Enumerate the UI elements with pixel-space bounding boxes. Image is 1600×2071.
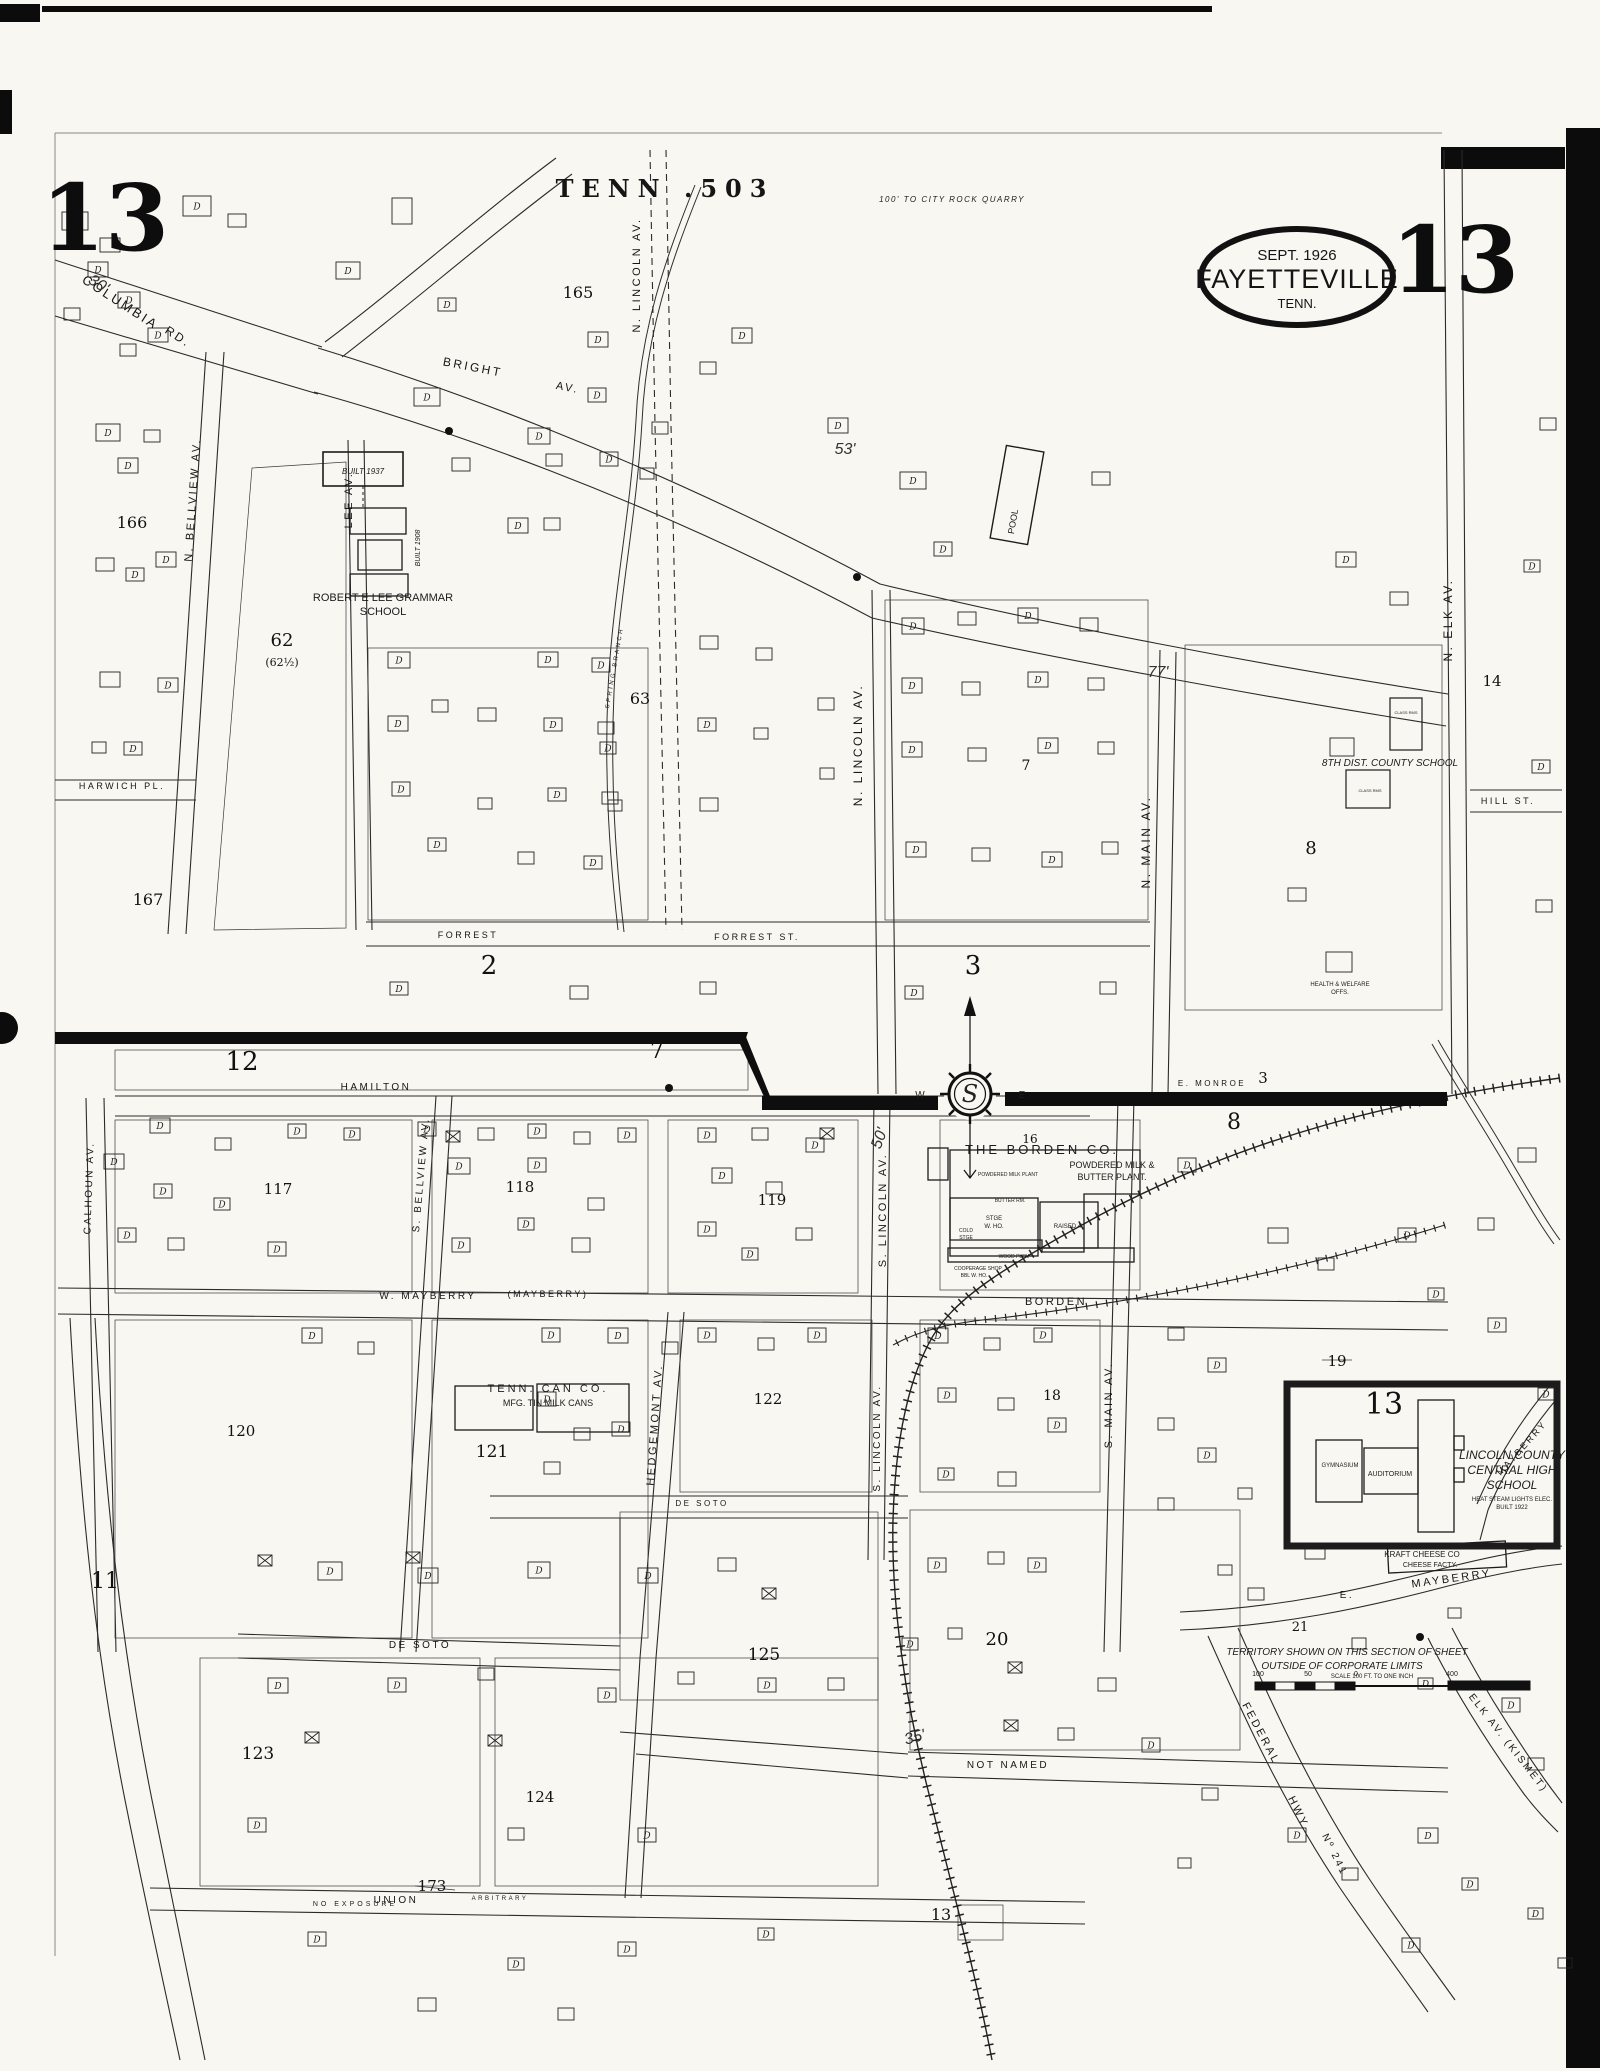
dwelling: D	[758, 1928, 774, 1941]
outbuilding	[758, 1338, 774, 1350]
dwelling: D	[248, 1818, 266, 1832]
dwelling-label: D	[532, 1128, 540, 1138]
landmark-label-stge: STGE	[986, 1216, 1002, 1222]
outbuilding	[984, 1338, 1000, 1350]
stamp-city: FAYETTEVILLE	[1195, 264, 1399, 294]
dwelling: D	[288, 1124, 306, 1138]
landmark-label-auditorium: AUDITORIUM	[1368, 1471, 1412, 1478]
outbuilding	[968, 748, 986, 761]
dwelling-label: D	[153, 332, 161, 342]
outbuilding	[756, 648, 772, 660]
outbuilding	[1330, 738, 1354, 756]
dwelling: D	[428, 838, 446, 851]
dwelling: D	[1418, 1828, 1438, 1843]
dwelling-label: D	[593, 336, 601, 346]
dwelling-label: D	[307, 1332, 315, 1342]
outbuilding	[1288, 888, 1306, 901]
dwelling: D	[214, 1198, 230, 1211]
dwelling-label: D	[252, 1822, 260, 1832]
outbuilding	[754, 728, 768, 739]
dwelling-label: D	[1406, 1942, 1414, 1952]
landmark-label-8th-dist-county-school: 8TH DIST. COUNTY SCHOOL	[1322, 758, 1458, 769]
dwelling: D	[448, 1158, 470, 1174]
dwelling: D	[528, 1124, 546, 1138]
outbuilding	[958, 612, 976, 625]
dwelling-label: D	[393, 720, 401, 730]
outbuilding	[598, 722, 614, 734]
dwelling-label: D	[534, 1567, 542, 1577]
outbuilding	[1238, 1488, 1252, 1499]
outbuilding	[820, 768, 834, 779]
block-number-7: 7	[650, 1039, 664, 1064]
dwelling-label: D	[905, 1641, 913, 1651]
dwelling-label: D	[603, 745, 611, 755]
outbuilding	[478, 798, 492, 809]
dwelling-label: D	[1292, 1832, 1300, 1842]
outbuilding-x	[820, 1128, 834, 1139]
street-label-forrest-st: FORREST ST.	[714, 932, 800, 942]
outbuilding	[1088, 678, 1104, 690]
outbuilding	[1448, 1608, 1461, 1618]
dwelling-label: D	[532, 1162, 540, 1172]
dwelling-label: D	[1202, 1452, 1210, 1462]
compass-north-arrow	[964, 996, 976, 1016]
dwelling-label: D	[1023, 612, 1031, 622]
dwelling-label: D	[511, 1961, 519, 1971]
dwelling: D	[1178, 1158, 1196, 1172]
block-number-63: 63	[630, 689, 650, 708]
dwelling: D	[336, 262, 360, 279]
block-number-166: 166	[117, 513, 148, 532]
block-number-20: 20	[986, 1629, 1009, 1650]
dwelling: D	[1524, 560, 1540, 573]
outbuilding-x	[406, 1552, 420, 1563]
sanborn-map-sheet: DDDDDDDDDDDDDDDDDDDDDDDDDDDDDDDDDDDDDDDD…	[0, 0, 1600, 2071]
dwelling-label: D	[616, 1426, 624, 1436]
dwelling: D	[928, 1558, 946, 1572]
dwelling-label: D	[192, 203, 200, 213]
dwelling: D	[1038, 738, 1058, 753]
dwelling-label: D	[1212, 1362, 1220, 1372]
street-label-w-mayberry: W. MAYBERRY	[379, 1291, 476, 1302]
dwelling-label: D	[938, 546, 946, 556]
dwelling-label: D	[908, 477, 916, 487]
dwelling: D	[608, 1328, 628, 1343]
outbuilding	[358, 1342, 374, 1354]
dwelling: D	[302, 1328, 322, 1343]
dwelling: D	[452, 1238, 470, 1252]
street-label-de-soto: DE SOTO	[675, 1499, 728, 1508]
dwelling-label: D	[109, 1158, 117, 1168]
dwelling: D	[638, 1828, 656, 1842]
dwelling: D	[118, 1228, 136, 1242]
stamp-date: SEPT. 1926	[1257, 247, 1336, 264]
street-label-arbitrary: ARBITRARY	[472, 1896, 529, 1902]
landmark-label-w-ho: W. HO.	[984, 1224, 1004, 1230]
street-curve-block11	[70, 1318, 205, 2060]
outbuilding	[572, 1238, 590, 1252]
landmark-label-health-welfare: HEALTH & WELFARE	[1310, 982, 1369, 988]
dwelling-label: D	[292, 1128, 300, 1138]
dwelling-label: D	[745, 1251, 753, 1261]
dwelling: D	[618, 1128, 636, 1142]
dwelling-label: D	[513, 522, 521, 532]
dwelling-label: D	[737, 332, 745, 342]
landmark-label-offs: OFFS.	[1331, 990, 1349, 996]
stamp-state: TENN.	[1278, 296, 1317, 311]
outbuilding	[1178, 1858, 1191, 1868]
street-not-named	[908, 1752, 1448, 1792]
dwelling-label: D	[933, 1332, 941, 1342]
dwelling-label: D	[394, 985, 402, 995]
dwelling-label: D	[130, 571, 138, 581]
street-label-forrest: FORREST	[438, 930, 499, 940]
dwelling-label: D	[1047, 856, 1055, 866]
landmark-label-lincoln-county: LINCOLN COUNTY	[1459, 1448, 1566, 1462]
dwelling-label: D	[1182, 1162, 1190, 1172]
outbuilding	[652, 422, 668, 434]
street-label-s-lincoln-av: S. LINCOLN AV.	[872, 1384, 883, 1491]
dwelling: D	[1336, 552, 1356, 567]
dwelling-label: D	[272, 1246, 280, 1256]
scale-tick-100: 100	[1252, 1671, 1264, 1678]
landmark-label-stge: STGE	[959, 1235, 973, 1241]
street-label-n-bellview-av: N. BELLVIEW AV.	[183, 437, 204, 562]
street-label-hill-st: HILL ST.	[1481, 796, 1535, 806]
dwelling: D	[806, 1138, 824, 1152]
outbuilding	[215, 1138, 231, 1150]
outbuilding	[602, 792, 618, 804]
outbuilding	[1478, 1218, 1494, 1230]
dwelling: D	[392, 782, 410, 796]
street-label-harwich-pl: HARWICH PL.	[79, 781, 165, 791]
outbuilding	[1058, 1728, 1074, 1740]
outbuilding	[1168, 1328, 1184, 1340]
dwelling: D	[1034, 1328, 1052, 1342]
block-number-125: 125	[748, 1645, 780, 1665]
dwelling-label: D	[454, 1163, 462, 1173]
landmark-label-built-1908: BUILT 1908	[415, 529, 422, 566]
dwelling-label: D	[812, 1332, 820, 1342]
outbuilding	[544, 518, 560, 530]
dwelling: D	[938, 1468, 954, 1481]
dwelling: D	[268, 1678, 288, 1693]
street-label-e-monroe: E. MONROE	[1178, 1079, 1246, 1088]
street-label-n-lincoln-av: N. LINCOLN AV.	[851, 684, 865, 806]
street-label-not-named: NOT NAMED	[967, 1760, 1049, 1771]
dwelling-label: D	[548, 721, 556, 731]
pool-building	[990, 445, 1044, 544]
street-bright-av	[314, 348, 1448, 726]
dwelling-label: D	[941, 1471, 949, 1481]
landmark-label-robert-e-lee-grammar: ROBERT E LEE GRAMMAR	[313, 592, 453, 604]
dwelling-label: D	[1341, 556, 1349, 566]
block-number-8: 8	[1305, 838, 1316, 859]
outbuilding	[1326, 952, 1352, 972]
block-number-13: 13	[931, 1905, 951, 1924]
landmark-label-central-high: CENTRAL HIGH	[1467, 1463, 1556, 1477]
outbuilding	[168, 1238, 184, 1250]
street-label-bright: BRIGHT	[442, 354, 504, 379]
outbuilding	[1218, 1565, 1232, 1575]
block-number-14: 14	[1482, 672, 1501, 690]
dwelling: D	[712, 1168, 732, 1183]
dwelling-label: D	[1032, 1562, 1040, 1572]
dwelling-label: D	[810, 1142, 818, 1152]
outbuilding	[518, 852, 534, 864]
dwelling: D	[828, 418, 848, 433]
dwelling-label: D	[158, 1188, 166, 1198]
outbuilding	[144, 430, 160, 442]
street-label-s-main-av: S. MAIN AV.	[1103, 1362, 1115, 1449]
outbuilding	[1540, 418, 1556, 430]
street-label-s-lincoln-av: S. LINCOLN AV.	[877, 1153, 889, 1267]
block-number-121: 121	[476, 1442, 508, 1462]
dwelling: D	[548, 788, 566, 801]
dwelling-label: D	[1541, 1391, 1549, 1401]
outbuilding	[92, 742, 106, 753]
outbuilding-x	[305, 1732, 319, 1743]
outbuilding	[1268, 1228, 1288, 1243]
dwelling-label: D	[907, 746, 915, 756]
dwelling-label: D	[442, 301, 450, 311]
landmark-label-heat-steam-lights-elec: HEAT STEAM LIGHTS ELEC.	[1472, 1497, 1552, 1503]
dwelling-label: D	[392, 1682, 400, 1692]
dwelling-label: D	[1531, 1910, 1539, 1920]
outbuilding	[608, 800, 622, 811]
dwelling-label: D	[932, 1562, 940, 1572]
street-label-av: AV.	[555, 380, 580, 396]
dwelling: D	[1028, 672, 1048, 687]
dwelling-label: D	[325, 1568, 333, 1578]
dwelling: D	[528, 428, 550, 444]
dwelling: D	[318, 1562, 342, 1580]
dwelling: D	[938, 1388, 956, 1402]
dwelling-label: D	[702, 1226, 710, 1236]
dwelling: D	[1402, 1938, 1420, 1952]
street-mayberry-borden	[58, 1288, 1448, 1330]
dwelling-label: D	[1465, 1881, 1473, 1891]
dwelling-label: D	[534, 433, 542, 443]
dwelling-label: D	[942, 1392, 950, 1402]
dwelling: D	[508, 518, 528, 533]
landmark-label-powdered-milk-plant: POWDERED MILK PLANT	[978, 1172, 1038, 1178]
punch-hole	[0, 1012, 18, 1044]
landmark-label-cheese-facty: CHEESE FACTY.	[1403, 1562, 1457, 1569]
outbuilding	[796, 1228, 812, 1240]
landmark-label-no-exposure: NO EXPOSURE	[313, 1901, 397, 1908]
dwelling: D	[588, 388, 606, 402]
creek-southeast	[1432, 1040, 1560, 1244]
landmark-label-butter-rm: BUTTER RM.	[995, 1198, 1026, 1204]
outbuilding	[1098, 1678, 1116, 1691]
dwelling: D	[156, 552, 176, 567]
street-label-n-lincoln-av: N. LINCOLN AV.	[631, 217, 643, 332]
block-number-12: 12	[225, 1047, 258, 1077]
dwelling: D	[344, 1128, 360, 1141]
dwelling: D	[508, 1958, 524, 1971]
street-label-lee-av: LEE AV.	[343, 472, 355, 529]
outbuilding	[700, 362, 716, 374]
dwelling-label: D	[422, 394, 430, 404]
dimension-labels: 77'53'50'35'30'	[85, 271, 1169, 1748]
dwelling: D	[1428, 1288, 1444, 1301]
dwelling: D	[538, 652, 558, 667]
dwelling: D	[388, 1678, 406, 1692]
street-label-hwy: HWY.	[1285, 1794, 1312, 1833]
outbuilding	[574, 1428, 590, 1440]
block-number-122: 122	[754, 1390, 783, 1408]
outbuilding-x	[258, 1555, 272, 1566]
dwelling: D	[598, 1688, 616, 1702]
dwelling-label: D	[643, 1572, 651, 1582]
outbuilding	[1092, 472, 1110, 485]
dwelling-label: D	[521, 1221, 529, 1231]
dwelling-label: D	[432, 841, 440, 851]
dwelling-label: D	[347, 1131, 355, 1141]
scale-tick-0: 0	[1354, 1671, 1358, 1678]
dwelling: D	[414, 388, 440, 406]
landmark-label-pool: POOL	[1006, 508, 1020, 534]
dwelling: D	[518, 1218, 534, 1231]
dwelling: D	[1488, 1318, 1506, 1332]
scale-tick-400: 400	[1446, 1671, 1458, 1678]
landmark-label-school: SCHOOL	[360, 606, 406, 618]
dwelling: D	[600, 742, 616, 755]
map-canvas: DDDDDDDDDDDDDDDDDDDDDDDDDDDDDDDDDDDDDDDD…	[0, 0, 1600, 2071]
outbuilding-x	[762, 1588, 776, 1599]
dwelling: D	[742, 1248, 758, 1261]
block-number-62: (62½)	[265, 656, 298, 669]
dwelling-label: D	[592, 392, 600, 402]
dwelling: D	[928, 1328, 948, 1343]
street-label-borden: BORDEN	[1025, 1296, 1087, 1308]
dwelling-label: D	[1506, 1702, 1514, 1712]
outbuilding	[478, 1668, 494, 1680]
dwelling: D	[124, 742, 142, 755]
dwelling-label: D	[622, 1132, 630, 1142]
landmark-label-the-borden-co: THE BORDEN CO.	[965, 1142, 1119, 1157]
sheet-number-left: 13	[41, 164, 169, 272]
dwelling: D	[1418, 1678, 1433, 1690]
monroe-paving-bands	[55, 1032, 1447, 1110]
dwelling: D	[388, 716, 408, 731]
outbuilding	[96, 558, 114, 571]
scale-bar: SCALE 100 FT. TO ONE INCH 100500400	[1252, 1671, 1530, 1690]
street-e-mayberry	[1180, 1546, 1562, 1630]
block-number-62: 62	[271, 630, 294, 651]
street-label-de-soto: DE SOTO	[389, 1640, 451, 1651]
dwelling: D	[96, 424, 120, 441]
dwelling: D	[1502, 1698, 1520, 1712]
dwelling-label: D	[552, 791, 560, 801]
dwelling-label: D	[273, 1682, 281, 1692]
landmark-label-tenn-can-co: TENN. CAN CO.	[488, 1383, 609, 1395]
block-number-21: 21	[1292, 1620, 1309, 1635]
dwelling-label: D	[602, 1692, 610, 1702]
street-n-lincoln-av	[872, 590, 896, 1094]
landmark-label-kraft-cheese-co: KRAFT CHEESE CO	[1384, 1550, 1459, 1559]
outbuilding	[1202, 1788, 1218, 1800]
dwelling-label: D	[122, 1232, 130, 1242]
street-label-e: E.	[1340, 1590, 1354, 1601]
dwelling-label: D	[163, 682, 171, 692]
dwelling-label: D	[343, 267, 351, 277]
street-quarry-road	[325, 158, 572, 357]
dwelling: D	[268, 1242, 286, 1256]
outbuilding	[588, 1198, 604, 1210]
dwelling-label: D	[909, 989, 917, 999]
outbuilding	[228, 214, 246, 227]
block-number-11: 11	[91, 1569, 119, 1594]
compass-monogram: S	[962, 1080, 978, 1108]
compass-west-label: W	[915, 1090, 925, 1101]
dimension-label-53: 53'	[835, 441, 857, 458]
dwelling: D	[698, 1222, 716, 1236]
outbuilding	[1158, 1418, 1174, 1430]
dwelling: D	[542, 1328, 560, 1342]
landmark-label-powdered-milk: POWDERED MILK &	[1069, 1160, 1154, 1170]
dwelling: D	[1048, 1418, 1066, 1432]
landmark-label-school: SCHOOL	[1487, 1478, 1538, 1492]
outbuilding	[828, 1678, 844, 1690]
dwelling: D	[698, 1128, 716, 1142]
street-label-n-elk-av: N. ELK AV.	[1441, 578, 1455, 661]
street-de-soto-mid	[490, 1496, 908, 1634]
scale-caption: SCALE 100 FT. TO ONE INCH	[1331, 1674, 1413, 1680]
dwelling: D	[902, 1638, 918, 1651]
dwelling-label: D	[546, 1332, 554, 1342]
outbuilding	[948, 1628, 962, 1639]
outbuilding	[1098, 742, 1114, 754]
outbuilding	[452, 458, 470, 471]
landmark-label-built-1937: BUILT 1937	[342, 467, 385, 476]
dwelling: D	[1538, 1388, 1554, 1401]
dwelling: D	[592, 658, 610, 672]
landmark-label-bbl-w-ho: BBL W. HO.	[961, 1273, 988, 1279]
landmark-label-outside-of-corporate-limits: OUTSIDE OF CORPORATE LIMITS	[1261, 1661, 1423, 1672]
dwelling: D	[1198, 1448, 1216, 1462]
dwelling: D	[906, 842, 926, 857]
block-number-18: 18	[1043, 1388, 1061, 1404]
dwelling: D	[588, 332, 608, 347]
dwelling: D	[183, 196, 211, 216]
sheet-number-right: 13	[1391, 206, 1519, 314]
dimension-label-50: 50'	[868, 1125, 891, 1151]
block-number-3: 3	[1258, 1069, 1268, 1087]
dwelling-label: D	[123, 462, 131, 472]
dwelling-label: D	[396, 786, 404, 796]
dwelling-label: D	[312, 1936, 320, 1946]
dwelling: D	[934, 542, 952, 556]
block-number-118: 118	[506, 1178, 535, 1196]
dwelling: D	[118, 458, 138, 473]
dwelling-label: D	[1052, 1422, 1060, 1432]
dwelling: D	[390, 982, 408, 995]
outbuilding	[570, 986, 588, 999]
dwelling-label: D	[596, 662, 604, 672]
dwelling-label: D	[702, 1132, 710, 1142]
dwelling-label: D	[1527, 563, 1535, 573]
street-label-rd: RD.	[163, 323, 194, 350]
outbuilding	[546, 454, 562, 466]
outbuilding	[574, 1132, 590, 1144]
outbuilding	[1248, 1588, 1264, 1600]
outbuilding	[988, 1552, 1004, 1564]
street-label-s-bellview-av: S. BELLVIEW AV.	[411, 1117, 432, 1233]
dwelling-label: D	[613, 1332, 621, 1342]
dwelling-label: D	[1431, 1291, 1439, 1301]
